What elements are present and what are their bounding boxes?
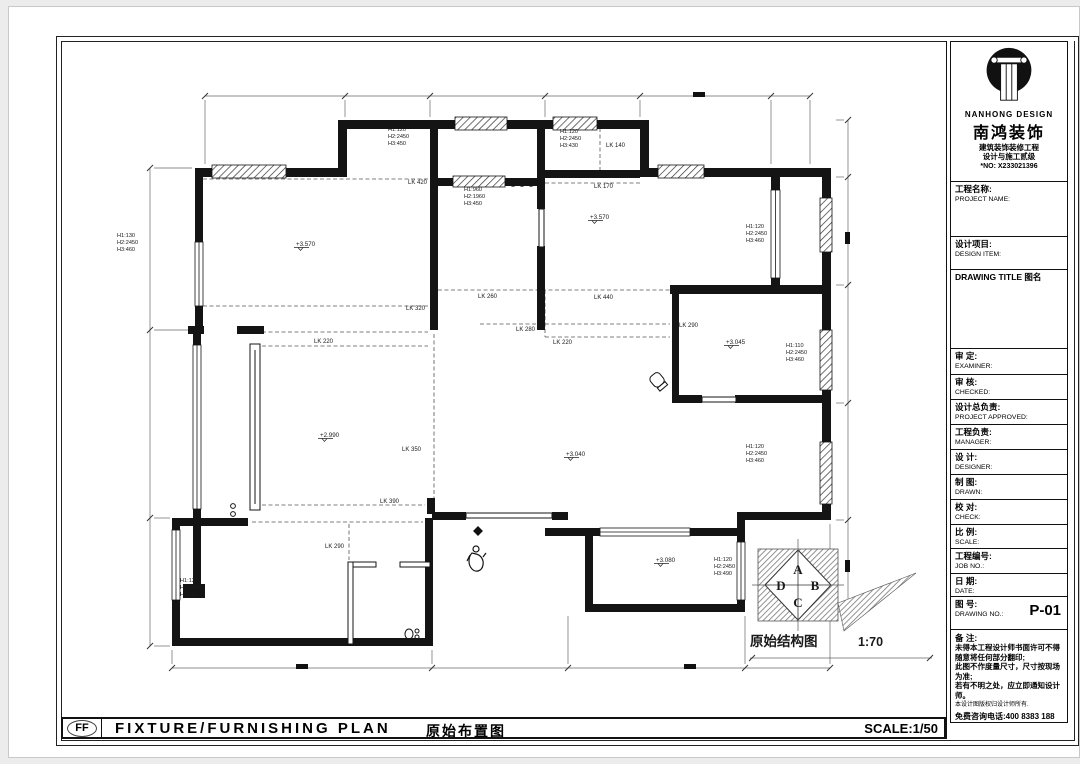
titleblock-rows: 工程名称:PROJECT NAME:设计项目:DESIGN ITEM:DRAWI… [950,181,1068,630]
window-label: H2:1960 [464,194,485,200]
fixture-icon [231,512,236,517]
sheet-code-badge: FF [67,720,97,737]
level-label: +3.080 [656,557,676,564]
footer-scale: SCALE:1/50 [864,721,938,736]
window-label: H2:2450 [560,136,581,142]
window-label: H3:490 [714,571,732,577]
window-label: H2:2450 [746,451,767,457]
titleblock-label-en: MANAGER: [955,438,1063,447]
window-label: H2:2450 [180,585,201,591]
brand-cert-line2: 设计与施工贰级 [955,152,1063,161]
titleblock-label-cn: 工程负责: [955,427,1063,438]
compass-letter: B [811,578,820,593]
titleblock-label-cn: 设计总负责: [955,402,1063,413]
window-label: H1:120 [388,127,406,133]
footer-title-cn: 原始布置图 [426,721,506,741]
beam-label: LK 440 [594,295,614,301]
titleblock-label-en: CHECKED: [955,388,1063,397]
brand-cert-line1: 建筑装饰装修工程 [955,143,1063,152]
titleblock-label-en: DRAWN: [955,488,1063,497]
titleblock-label-cn: DRAWING TITLE 图名 [955,272,1063,283]
beam-label: LK 220 [314,339,334,345]
titleblock-label-cn: 比 例: [955,527,1063,538]
titleblock-label-en: PROJECT APPROVED: [955,413,1063,422]
window-label: H2:2450 [117,240,138,246]
toilet-icon [648,371,668,392]
titleblock-row: 设 计:DESIGNER: [950,449,1068,475]
beam-label: LK 220 [553,340,573,346]
remark-line: 师。 [955,691,1063,701]
toilet-icon [405,629,419,639]
nanhong-logo-icon [981,46,1037,104]
titleblock-label-cn: 制 图: [955,477,1063,488]
beam-label: LK 320 [406,306,426,312]
title-block-panel: NANHONG DESIGN 南鸿装饰 建筑装饰装修工程 设计与施工贰级 *NO… [946,41,1074,739]
titleblock-row: 日 期:DATE: [950,573,1068,597]
beam-label: LK 280 [516,327,536,333]
window-label: H1:120 [560,129,578,135]
brand-block: NANHONG DESIGN 南鸿装饰 建筑装饰装修工程 设计与施工贰级 *NO… [950,41,1068,182]
titleblock-label-cn: 设 计: [955,452,1063,463]
remark-line: 为准; [955,672,1063,682]
remark-line: 若有不明之处，应立即通知设计 [955,681,1063,691]
compass-letter: D [776,578,785,593]
titleblock-label-en: DESIGNER: [955,463,1063,472]
titleblock-row: 制 图:DRAWN: [950,474,1068,500]
titleblock-label-cn: 工程编号: [955,551,1063,562]
window-label: H2:2450 [746,231,767,237]
fixtures [231,180,669,639]
remarks-block: 备 注: 未得本工程设计师书面许可不得随意将任何部分翻印;此图不作度量尺寸，尺寸… [950,629,1068,723]
window-label: H3:460 [117,247,135,253]
remark-lines: 未得本工程设计师书面许可不得随意将任何部分翻印;此图不作度量尺寸，尺寸按现场为准… [955,643,1063,700]
remark-line: 未得本工程设计师书面许可不得 [955,643,1063,653]
titleblock-label-cn: 校 对: [955,502,1063,513]
titleblock-row: 校 对:CHECK: [950,499,1068,525]
drawing-number: P-01 [1029,602,1061,619]
level-label: +3.570 [296,241,316,248]
window-label: H3:450 [464,201,482,207]
footer-title-en: FIXTURE/FURNISHING PLAN [115,720,391,737]
titleblock-label-en: JOB NO.: [955,562,1063,571]
sheet-code-cell: FF [63,719,102,737]
titleblock-row: DRAWING TITLE 图名 [950,269,1068,349]
level-label: +3.570 [590,214,610,221]
titleblock-row: 工程负责:MANAGER: [950,424,1068,450]
compass-letter: C [793,595,802,610]
entry-marker [473,526,483,536]
remarks-small-print: 本设计图版权归设计师所有. [955,701,1063,709]
brand-cert-no: *NO: X233021396 [955,163,1063,170]
beam-label: LK 350 [402,447,422,453]
hotline: 免费咨询电话:400 8383 188 [955,711,1063,722]
window-label: H3:460 [746,238,764,244]
titleblock-row: 工程名称:PROJECT NAME: [950,181,1068,237]
remarks-title: 备 注: [955,633,1063,643]
titleblock-label-cn: 设计项目: [955,239,1063,250]
titleblock-label-en: DESIGN ITEM: [955,250,1063,259]
beam-label: LK 260 [478,294,498,300]
titleblock-label-en: CHECK: [955,513,1063,522]
titleblock-label-en: EXAMINER: [955,362,1063,371]
fixture-icon [231,504,236,509]
beam-label: LK 420 [408,180,428,186]
window-label: H2:2450 [388,134,409,140]
level-label: +2.990 [320,432,340,439]
window-label: H3:460 [786,357,804,363]
window-label: H3:430 [560,143,578,149]
titleblock-row: 比 例:SCALE: [950,524,1068,549]
beam-label: LK 140 [606,143,626,149]
titleblock-label-en: DATE: [955,587,1063,596]
brand-name-cn: 南鸿装饰 [955,119,1063,143]
drawing-sheet-page: LK 420LK 140LK 170LK 320LK 220LK 260LK 4… [0,0,1080,764]
titleblock-label-cn: 工程名称: [955,184,1063,195]
level-label: +3.045 [726,339,746,346]
titleblock-label-en: PROJECT NAME: [955,195,1063,204]
window-label: H1:120 [180,578,198,584]
window-label: H1:960 [464,187,482,193]
titleblock-row: 设计总负责:PROJECT APPROVED: [950,399,1068,425]
window-label: H1:120 [746,224,764,230]
window-label: H2:2450 [714,564,735,570]
beam-label: LK 290 [679,323,699,329]
titleblock-label-en: SCALE: [955,538,1063,547]
window-label: H3:450 [388,141,406,147]
window-label: H2:2450 [786,350,807,356]
plan-caption-text: 原始结构图 [750,633,818,649]
titleblock-row: 工程编号:JOB NO.: [950,548,1068,574]
titleblock-row: 审 定:EXAMINER: [950,348,1068,375]
window-label: H1:120 [746,444,764,450]
beam-label: LK 290 [325,544,345,550]
remark-line: 随意将任何部分翻印; [955,653,1063,663]
plan-caption-scale: 1:70 [858,635,883,649]
window-label: H1:130 [117,233,135,239]
titleblock-row: 设计项目:DESIGN ITEM: [950,236,1068,270]
window-label: H3:460 [746,458,764,464]
beam-label: LK 390 [380,499,400,505]
window-label: H3:460 [180,592,198,598]
titleblock-label-cn: 审 核: [955,377,1063,388]
brand-name-en: NANHONG DESIGN [955,110,1063,119]
partitions-doors [250,209,736,644]
window-label: H1:120 [714,557,732,563]
remark-line: 此图不作度量尺寸，尺寸按现场 [955,662,1063,672]
footer-title-bar: FF FIXTURE/FURNISHING PLAN 原始布置图 SCALE:1… [61,717,946,739]
titleblock-label-cn: 日 期: [955,576,1063,587]
person-figure [467,546,486,571]
window-label: H1:110 [786,343,804,349]
compass-letter: A [793,562,803,577]
titleblock-label-cn: 审 定: [955,351,1063,362]
level-label: +3.040 [566,451,586,458]
floor-plan: LK 420LK 140LK 170LK 320LK 220LK 260LK 4… [61,41,946,717]
titleblock-row: 审 核:CHECKED: [950,374,1068,400]
titleblock-row: 图 号:DRAWING NO.:P-01 [950,596,1068,630]
beam-label: LK 170 [594,184,614,190]
